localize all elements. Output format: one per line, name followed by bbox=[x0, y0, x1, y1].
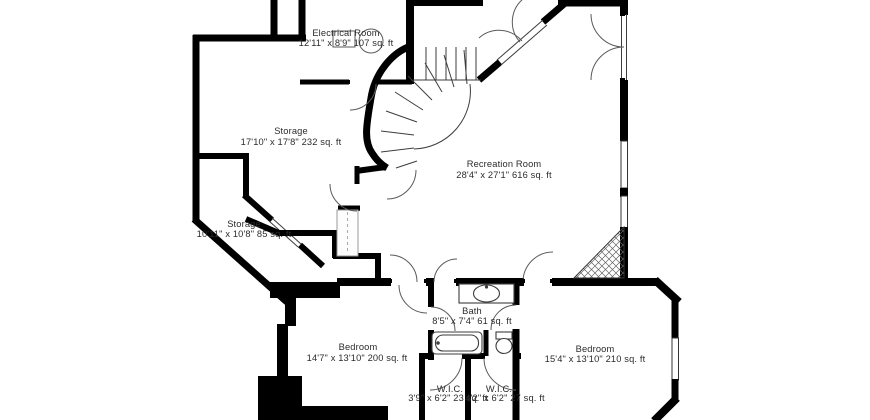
room-dims-electrical: 12'11" x 8'9" 107 sq. ft bbox=[299, 38, 394, 48]
room-name-storage-upper: Storage bbox=[274, 126, 308, 136]
jamb-mark bbox=[454, 279, 458, 283]
wall bbox=[278, 406, 388, 420]
room-dims-bedroom-right: 15'4" x 13'10" 210 sq. ft bbox=[545, 354, 646, 364]
door-arc bbox=[512, 0, 523, 42]
door-arc bbox=[434, 259, 457, 282]
jamb-mark bbox=[355, 180, 359, 184]
room-name-bedroom-left: Bedroom bbox=[339, 342, 378, 352]
staircase bbox=[367, 46, 481, 168]
wall bbox=[654, 398, 677, 420]
door-opening-line bbox=[501, 25, 547, 65]
stair-treads bbox=[426, 47, 476, 80]
room-dims-storage-upper: 17'10" x 17'8" 232 sq. ft bbox=[241, 137, 342, 147]
hatched-understair-area bbox=[574, 227, 624, 278]
door-opening-line bbox=[497, 20, 543, 60]
wall bbox=[285, 296, 296, 326]
bathtub-basin bbox=[436, 335, 479, 351]
window bbox=[672, 338, 679, 380]
wall bbox=[300, 245, 323, 266]
door-arc bbox=[591, 14, 624, 47]
room-dims-storage-lower: 10'11" x 10'8" 85 sq. ft bbox=[197, 229, 292, 239]
stair-winder-treads bbox=[381, 50, 467, 168]
jamb-mark bbox=[388, 279, 392, 283]
jamb-mark bbox=[620, 78, 625, 83]
door-arc bbox=[591, 47, 624, 80]
tub-faucet-icon bbox=[436, 341, 440, 345]
room-name-recreation: Recreation Room bbox=[467, 159, 542, 169]
jamb-mark bbox=[521, 279, 525, 283]
room-dims-bath: 8'5" x 7'4" 61 sq. ft bbox=[432, 316, 512, 326]
window bbox=[621, 196, 628, 228]
door-jamb-marks bbox=[346, 11, 625, 283]
room-name-electrical: Electrical Room bbox=[312, 28, 379, 38]
stair-inner-rail bbox=[414, 84, 470, 149]
window bbox=[621, 141, 628, 188]
jamb-mark bbox=[374, 80, 378, 84]
room-name-storage-lower: Storage bbox=[227, 219, 261, 229]
wall bbox=[244, 195, 272, 220]
faucet-icon bbox=[485, 285, 488, 288]
door-arc bbox=[390, 255, 417, 282]
wall bbox=[270, 282, 340, 298]
floor-plan-svg: Electrical Room 12'11" x 8'9" 107 sq. ft… bbox=[0, 0, 870, 420]
door-arc bbox=[399, 285, 427, 313]
toilet-bowl bbox=[496, 339, 512, 354]
jamb-mark bbox=[550, 279, 554, 283]
wall bbox=[543, 4, 564, 22]
jamb-mark bbox=[620, 11, 625, 16]
wall bbox=[655, 280, 679, 302]
jamb-mark bbox=[346, 80, 350, 84]
door-arc bbox=[523, 252, 553, 282]
door-arc bbox=[387, 170, 416, 199]
interior-walls bbox=[196, 82, 658, 420]
wall bbox=[479, 62, 500, 80]
floor-plan-canvas: Electrical Room 12'11" x 8'9" 107 sq. ft… bbox=[0, 0, 870, 420]
room-dims-wic-right: 4'2" x 6'2" 27 sq. ft bbox=[465, 393, 545, 403]
room-name-bedroom-right: Bedroom bbox=[576, 344, 615, 354]
room-dims-recreation: 28'4" x 27'1" 616 sq. ft bbox=[456, 170, 552, 180]
jamb-mark bbox=[424, 279, 428, 283]
room-name-bath: Bath bbox=[462, 306, 482, 316]
room-dims-bedroom-left: 14'7" x 13'10" 200 sq. ft bbox=[307, 353, 408, 363]
stair-curved-wall bbox=[367, 46, 411, 168]
